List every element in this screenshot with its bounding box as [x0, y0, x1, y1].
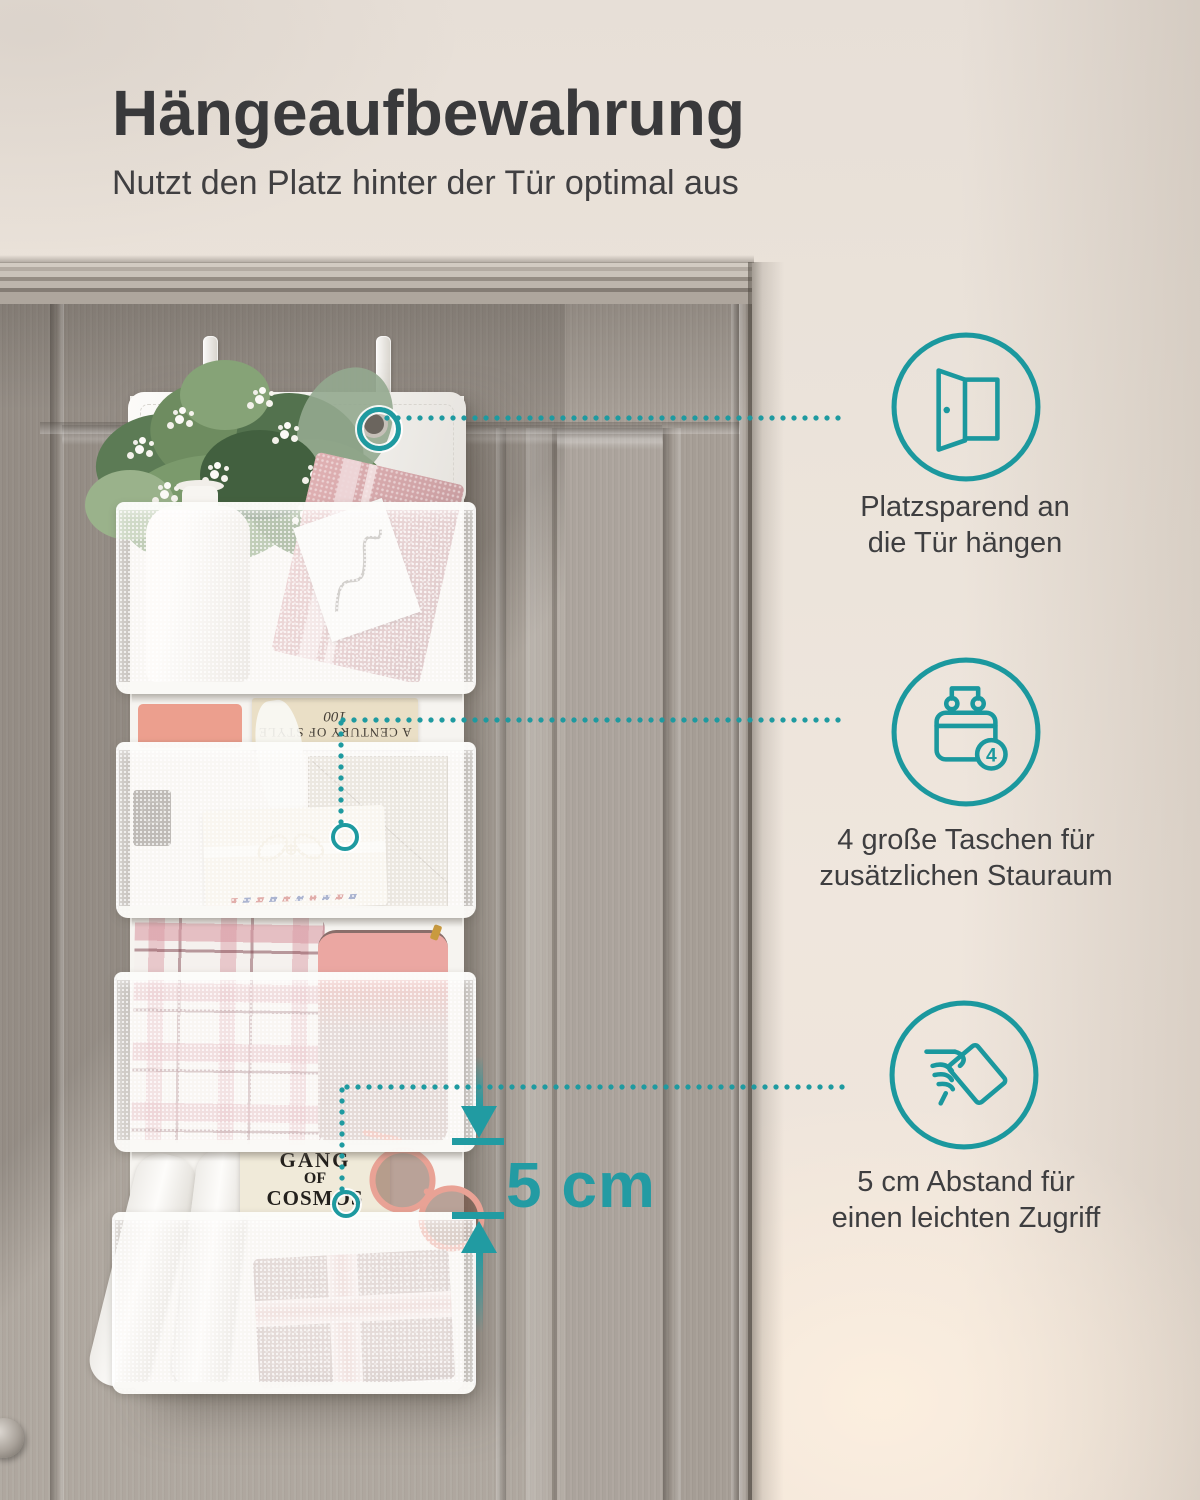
door-left-groove [50, 262, 64, 1500]
callout-marker-2 [331, 823, 359, 851]
feature-1-line-2: die Tür hängen [800, 525, 1130, 561]
door-top-shadow-line [0, 255, 754, 263]
arrow-down-head [461, 1106, 497, 1138]
page-title: Hängeaufbewahrung [112, 76, 745, 150]
white-flowers [210, 470, 219, 479]
feature-2-text: 4 große Taschen für zusätzlichen Staurau… [790, 822, 1142, 894]
open-door-icon [890, 331, 1042, 483]
product-infographic: A CENTURY OF STYLE 100 GANG OF COSMOS [0, 0, 1200, 1500]
mesh-pocket-3 [114, 972, 476, 1152]
door-panel-groove [496, 428, 506, 1500]
feature-1-icon-circle [890, 331, 1042, 488]
feature-2-line-1: 4 große Taschen für [790, 822, 1142, 858]
arrow-down-shaft [476, 1056, 483, 1108]
arrow-up-head [461, 1221, 497, 1253]
mesh-pocket-1 [116, 502, 476, 694]
door-frame-shadow [748, 262, 784, 1500]
measure-tick-top [452, 1138, 504, 1145]
door-panel-bevel [663, 428, 681, 1500]
white-flowers [160, 490, 169, 499]
leader-line-3-horizontal [344, 1084, 846, 1090]
feature-3-text: 5 cm Abstand für einen leichten Zugriff [790, 1164, 1142, 1236]
feature-1-line-1: Platzsparend an [800, 489, 1130, 525]
measure-tick-bottom [452, 1212, 504, 1219]
white-flowers [135, 445, 144, 454]
callout-marker-1 [357, 407, 401, 451]
white-flowers [175, 415, 184, 424]
shelf-shadow [132, 694, 462, 703]
door-panel [557, 428, 663, 1500]
leader-line-2-vertical [338, 720, 344, 826]
mesh-pocket-2 [116, 742, 476, 918]
door-panel-highlight [526, 428, 552, 1500]
feature-3-line-1: 5 cm Abstand für [790, 1164, 1142, 1200]
callout-marker-3 [332, 1190, 360, 1218]
feature-2-line-2: zusätzlichen Stauraum [790, 858, 1142, 894]
page-subtitle: Nutzt den Platz hinter der Tür optimal a… [112, 164, 739, 203]
shelf-shadow [132, 918, 462, 927]
arrow-up-shaft [476, 1251, 483, 1333]
pocket-count-badge: 4 [986, 745, 997, 766]
white-flowers [280, 430, 289, 439]
measure-label: 5 cm [506, 1148, 656, 1222]
feature-1-text: Platzsparend an die Tür hängen [800, 489, 1130, 561]
hand-card-icon [888, 999, 1040, 1151]
shelf-shadow [132, 1152, 462, 1161]
leader-line-1 [384, 415, 842, 421]
organizer-hooks-icon: 4 [890, 656, 1042, 808]
door-edge-groove [731, 262, 739, 1500]
feature-2-icon-circle: 4 [890, 656, 1042, 813]
white-flowers [255, 395, 264, 404]
feature-3-line-2: einen leichten Zugriff [790, 1200, 1142, 1236]
door-top-molding [0, 262, 752, 304]
mesh-pocket-4 [112, 1212, 476, 1394]
feature-3-icon-circle [888, 999, 1040, 1156]
leader-line-3-vertical [339, 1087, 345, 1191]
leader-line-2-horizontal [340, 717, 846, 723]
